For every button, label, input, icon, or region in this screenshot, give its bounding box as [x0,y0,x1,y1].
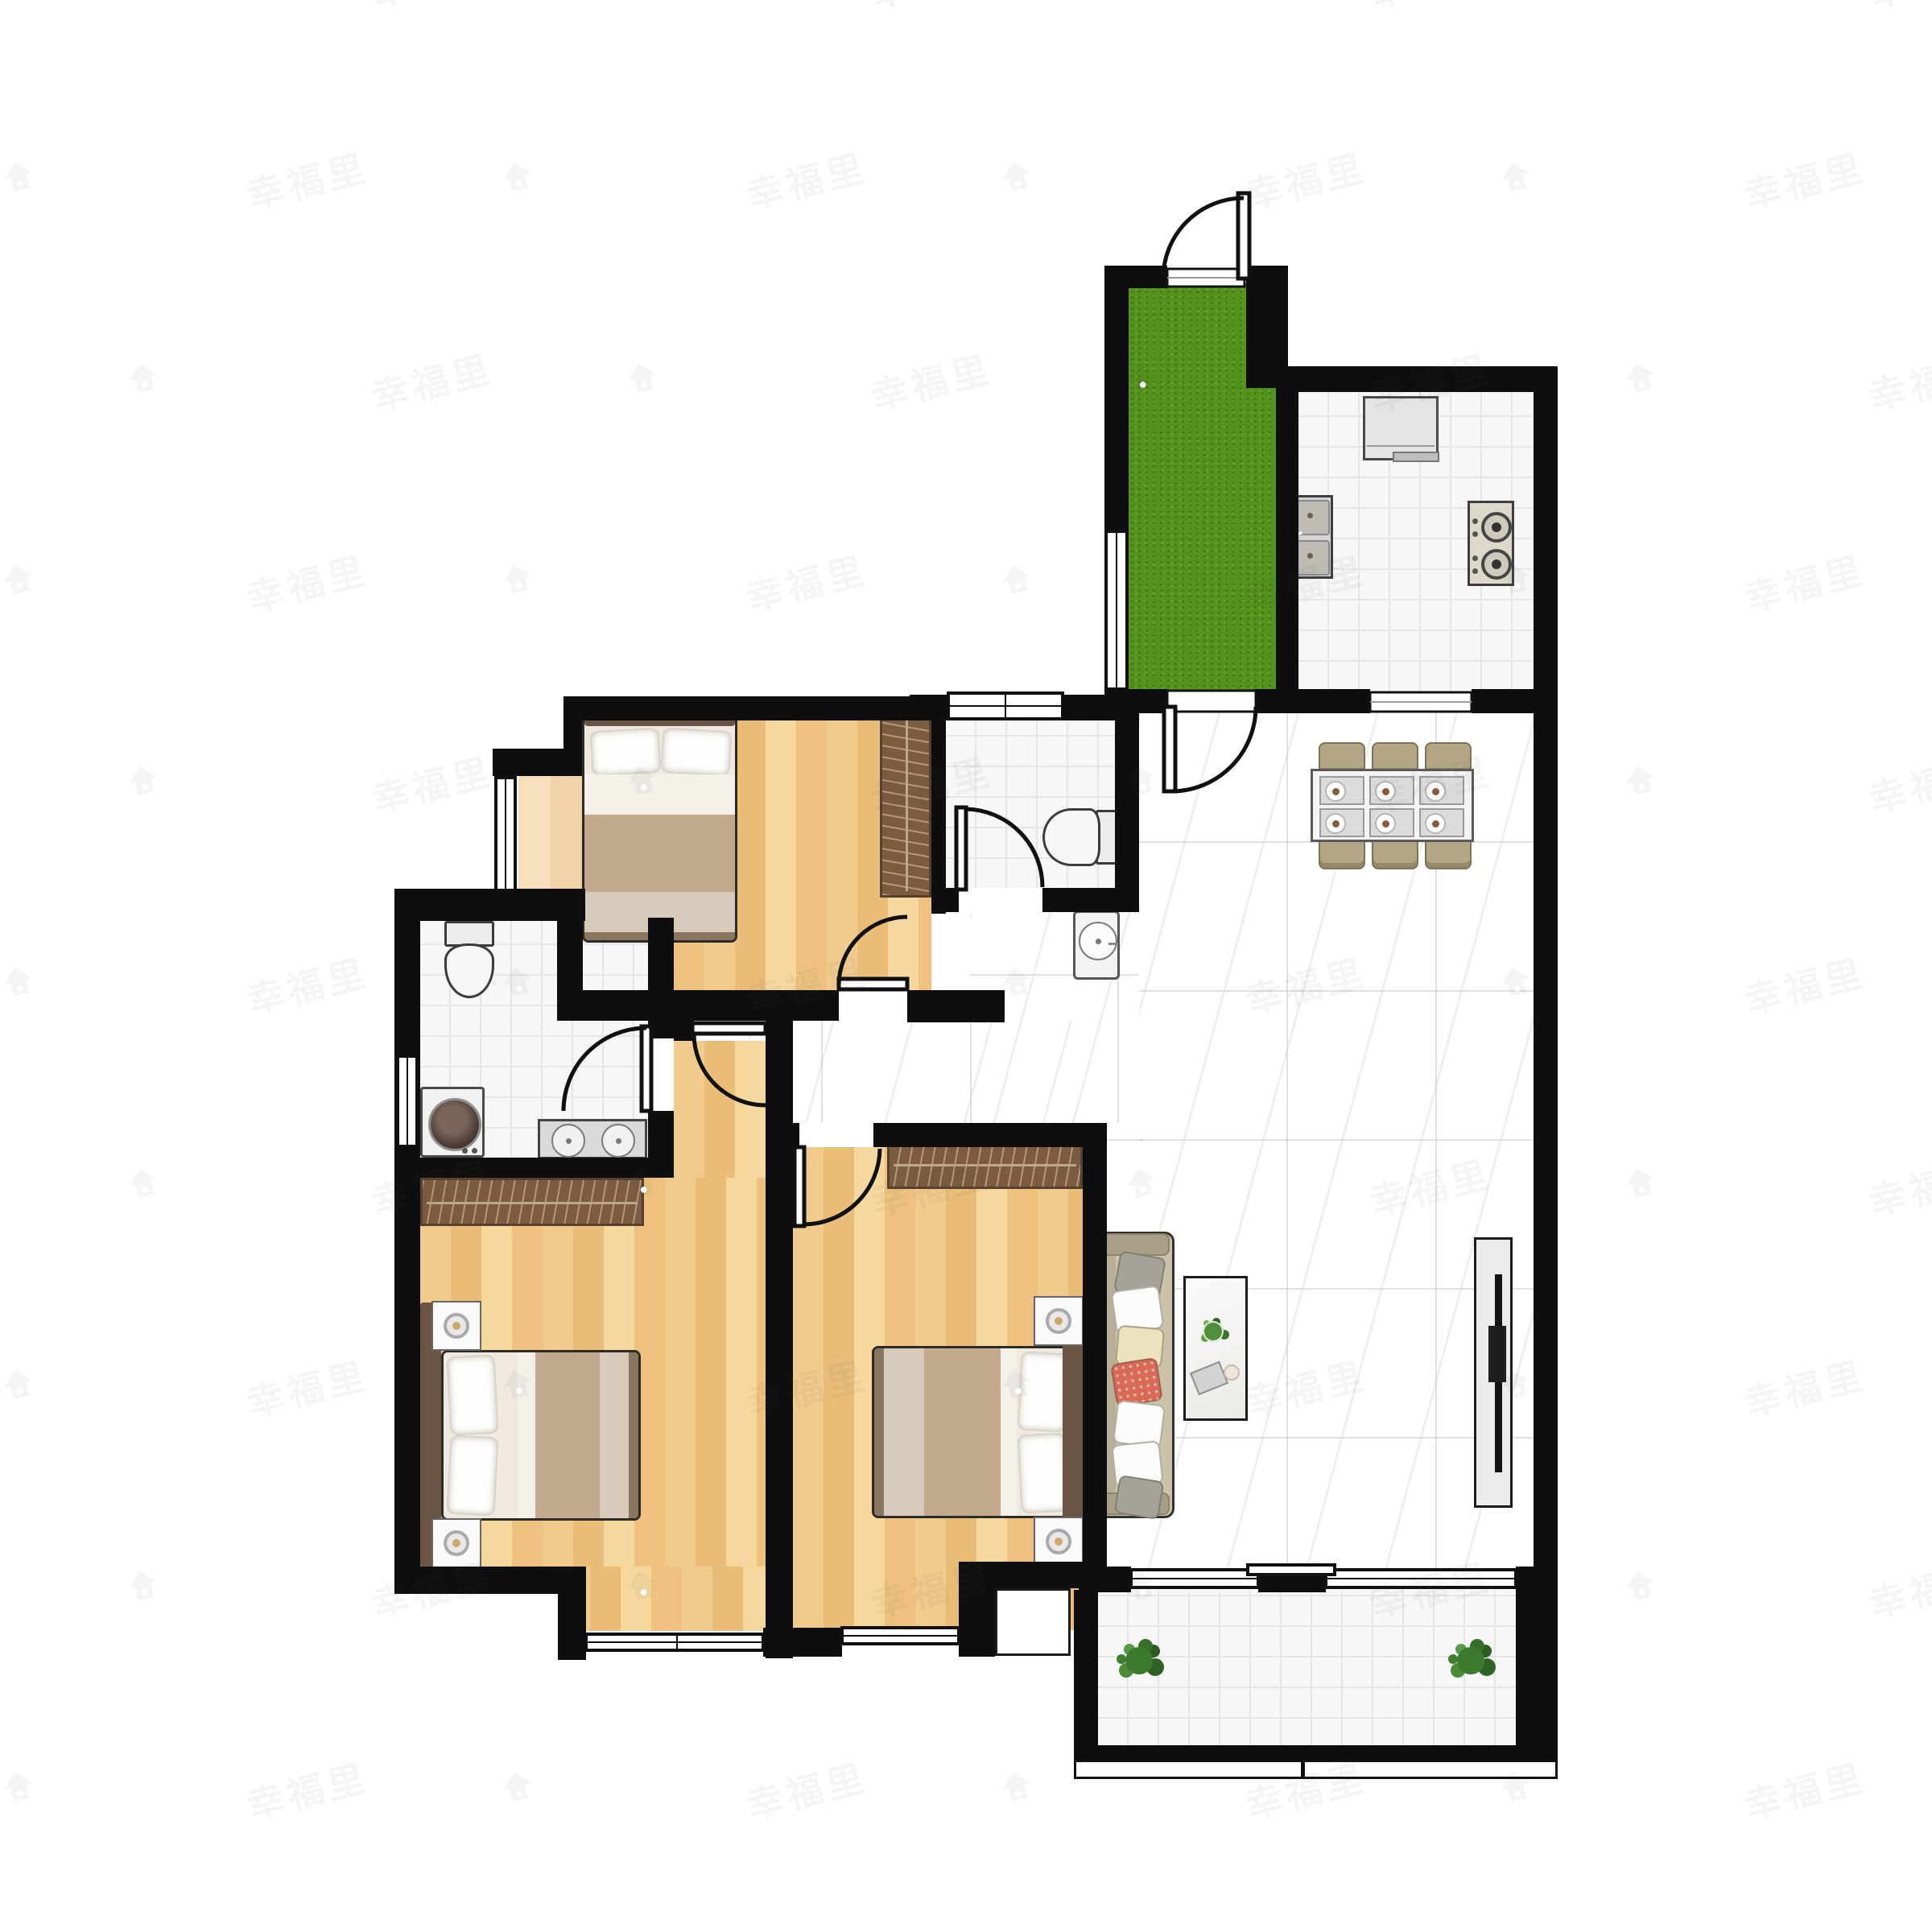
floor-plan-canvas: 幸福里幸福里幸福里幸福里幸福里幸福里幸福里幸福里幸福里幸福里幸福里幸福里幸福里幸… [0,0,1932,1932]
bedroom-top-door-leaf [839,979,907,989]
entry-door-leaf [1238,193,1249,279]
bathroom-left-door-arc [563,1028,646,1111]
doors-windows-layer [0,0,1932,1932]
bedroom-left-door-arc [694,1034,766,1105]
garden-inner-door-arc [1171,707,1256,791]
bathroom-left-door-leaf [642,1026,651,1111]
entry-door-arc [1163,198,1244,279]
bedroom-middle-door-arc [804,1149,880,1224]
balcony-slider-leaf [1248,1565,1335,1575]
bedroom-left-door-leaf [692,1023,766,1034]
bathroom-middle-door-leaf [956,807,966,890]
bedroom-middle-door-leaf [795,1147,804,1226]
bathroom-middle-door-arc [966,809,1042,887]
garden-inner-threshold [1167,691,1256,712]
garden-inner-door-leaf [1164,707,1175,791]
bedroom-top-door-arc [839,917,907,985]
